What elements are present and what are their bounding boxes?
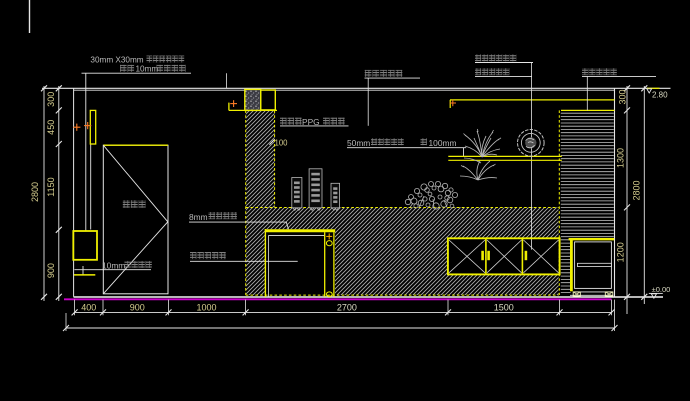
svg-text:1300: 1300: [616, 148, 626, 168]
svg-text:300: 300: [618, 89, 628, 104]
svg-text:2800: 2800: [632, 180, 642, 200]
svg-text:400: 400: [81, 303, 96, 313]
svg-text:1150: 1150: [46, 177, 56, 196]
svg-text:2800: 2800: [30, 182, 40, 202]
svg-text:100mm: 100mm: [429, 138, 457, 148]
svg-text:450: 450: [46, 120, 56, 135]
svg-text:8mm: 8mm: [189, 212, 208, 222]
svg-text:900: 900: [130, 303, 145, 313]
svg-text:100: 100: [275, 139, 289, 148]
svg-text:2.80: 2.80: [652, 91, 668, 100]
svg-text:50mm: 50mm: [347, 138, 370, 148]
svg-text:10mm: 10mm: [102, 260, 125, 270]
svg-text:1000: 1000: [196, 303, 216, 313]
svg-text:900: 900: [46, 263, 56, 278]
svg-text:2700: 2700: [337, 303, 357, 313]
svg-text:1500: 1500: [494, 303, 514, 313]
svg-text:10mm: 10mm: [136, 65, 159, 74]
svg-text:±0.00: ±0.00: [652, 285, 671, 294]
svg-text:1200: 1200: [616, 242, 626, 262]
svg-text:300: 300: [46, 92, 56, 107]
svg-text:30mm X30mm: 30mm X30mm: [90, 55, 143, 64]
